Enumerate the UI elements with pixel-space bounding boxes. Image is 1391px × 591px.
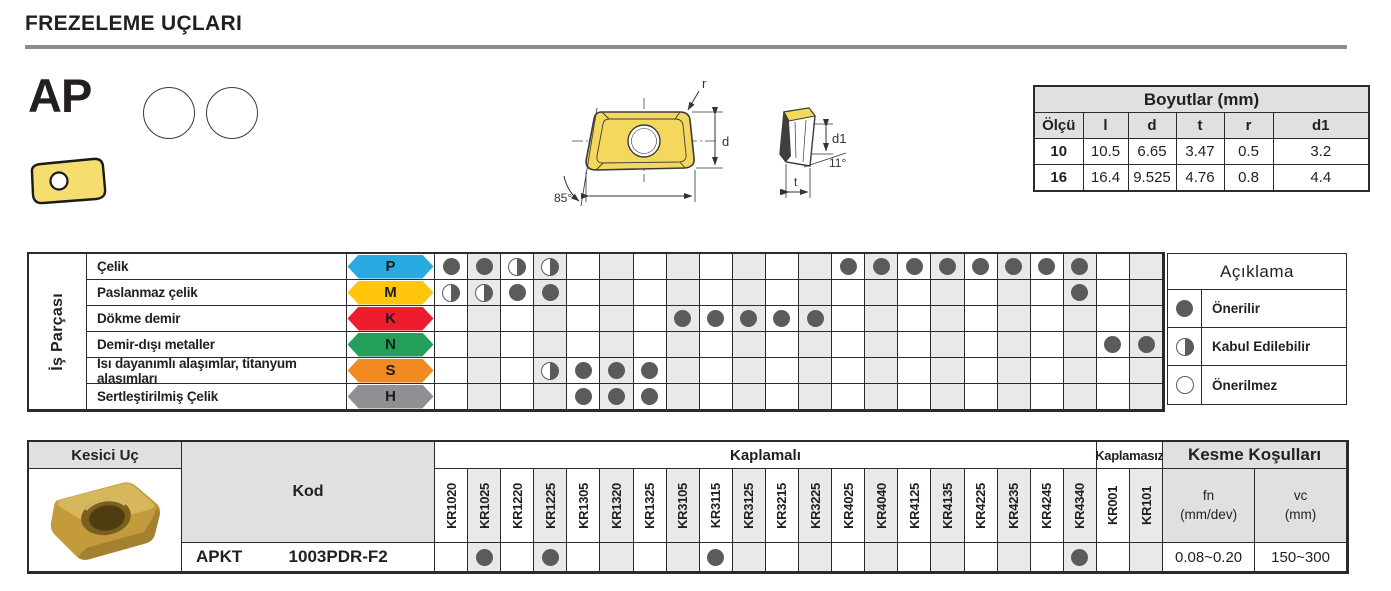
grade-mark-cell bbox=[998, 306, 1031, 332]
grade-header-text: KR1225 bbox=[543, 483, 558, 529]
grade-mark-cell bbox=[1064, 306, 1097, 332]
dimensions-value: 16 bbox=[1034, 165, 1083, 192]
grade-mark-cell bbox=[766, 306, 799, 332]
dimensions-value: 4.76 bbox=[1176, 165, 1224, 192]
grade-mark-cell bbox=[634, 280, 667, 306]
insert-code-prefix: APKT bbox=[196, 547, 242, 567]
recommendation-full-dot bbox=[608, 388, 625, 405]
grade-mark-cell bbox=[799, 306, 832, 332]
grade-header-text: KR1020 bbox=[444, 483, 459, 529]
kod-header: Kod bbox=[182, 442, 435, 543]
recommendation-full-dot bbox=[1138, 336, 1155, 353]
dimensions-col-header: d1 bbox=[1273, 113, 1369, 139]
grade-header-kr101: KR101 bbox=[1130, 469, 1163, 543]
grade-mark-cell bbox=[435, 280, 468, 306]
grade-mark-cell bbox=[634, 384, 667, 410]
legend-symbol-cell bbox=[1168, 366, 1202, 404]
workpiece-material-table: İş Parçası ÇelikPPaslanmaz çelikMDökme d… bbox=[27, 252, 1165, 412]
grade-header-kr3125: KR3125 bbox=[733, 469, 766, 543]
grade-mark-cell bbox=[501, 280, 534, 306]
grade-mark-cell bbox=[931, 358, 964, 384]
grade-mark-cell bbox=[1064, 332, 1097, 358]
not-recommended-circle-icon bbox=[1176, 376, 1194, 394]
material-row-label: Dökme demir bbox=[87, 306, 347, 332]
grade-mark-cell bbox=[600, 384, 633, 410]
grade-mark-cell bbox=[931, 254, 964, 280]
grade-mark-cell bbox=[468, 543, 501, 572]
grade-mark-cell bbox=[600, 254, 633, 280]
grade-mark-cell bbox=[667, 384, 700, 410]
grade-header-text: KR1305 bbox=[576, 483, 591, 529]
grade-header-text: KR1220 bbox=[510, 483, 525, 529]
insert-outline-icon bbox=[28, 157, 110, 205]
grade-mark-cell bbox=[700, 543, 733, 572]
grade-mark-cell bbox=[865, 306, 898, 332]
recommendation-full-dot bbox=[707, 310, 724, 327]
grade-mark-cell bbox=[931, 306, 964, 332]
grade-mark-cell bbox=[865, 332, 898, 358]
dimensions-value: 4.4 bbox=[1273, 165, 1369, 192]
grade-mark-cell bbox=[998, 254, 1031, 280]
grade-mark-cell bbox=[567, 384, 600, 410]
grade-mark-cell bbox=[501, 543, 534, 572]
grade-header-text: KR4235 bbox=[1006, 483, 1021, 529]
label-hole-diameter: d1 bbox=[832, 131, 846, 146]
legend-item-label: Kabul Edilebilir bbox=[1202, 328, 1346, 366]
fn-label-line1: fn bbox=[1203, 487, 1214, 505]
grade-mark-cell bbox=[700, 254, 733, 280]
grade-header-kr4235: KR4235 bbox=[998, 469, 1031, 543]
grade-header-kr4340: KR4340 bbox=[1064, 469, 1097, 543]
grade-header-kr4125: KR4125 bbox=[898, 469, 931, 543]
grade-mark-cell bbox=[1031, 358, 1064, 384]
grade-mark-cell bbox=[667, 332, 700, 358]
grade-mark-cell bbox=[865, 280, 898, 306]
grade-mark-cell bbox=[1130, 358, 1163, 384]
grade-mark-cell bbox=[965, 543, 998, 572]
recommendation-half-dot bbox=[541, 362, 559, 380]
grade-mark-cell bbox=[965, 358, 998, 384]
grade-mark-cell bbox=[799, 280, 832, 306]
label-radius: r bbox=[702, 76, 707, 91]
grade-mark-cell bbox=[567, 254, 600, 280]
grade-mark-cell bbox=[832, 280, 865, 306]
label-thickness: t bbox=[794, 175, 798, 189]
grade-header-text: KR4125 bbox=[907, 483, 922, 529]
grade-mark-cell bbox=[435, 384, 468, 410]
recommendation-full-dot bbox=[1038, 258, 1055, 275]
grade-mark-cell bbox=[435, 254, 468, 280]
recommendation-full-dot bbox=[740, 310, 757, 327]
grade-mark-cell bbox=[1097, 254, 1130, 280]
recommendation-full-dot bbox=[542, 549, 559, 566]
grade-header-kr3115: KR3115 bbox=[700, 469, 733, 543]
grade-mark-cell bbox=[766, 543, 799, 572]
dimensions-value: 9.525 bbox=[1128, 165, 1176, 192]
grade-mark-cell bbox=[468, 358, 501, 384]
grade-mark-cell bbox=[634, 543, 667, 572]
legend-title: Açıklama bbox=[1168, 254, 1346, 290]
grade-mark-cell bbox=[567, 358, 600, 384]
grade-header-kr1025: KR1025 bbox=[468, 469, 501, 543]
recommendation-full-dot bbox=[773, 310, 790, 327]
grade-mark-cell bbox=[534, 332, 567, 358]
grade-header-text: KR1325 bbox=[642, 483, 657, 529]
grade-mark-cell bbox=[468, 254, 501, 280]
insert-hole bbox=[51, 173, 68, 190]
grade-mark-cell bbox=[1031, 543, 1064, 572]
grade-mark-cell bbox=[733, 280, 766, 306]
grade-header-text: KR1025 bbox=[477, 483, 492, 529]
fn-header: fn (mm/dev) bbox=[1163, 469, 1255, 543]
grade-mark-cell bbox=[898, 306, 931, 332]
recommendation-full-dot bbox=[1071, 549, 1088, 566]
material-row-label: Demir-dışı metaller bbox=[87, 332, 347, 358]
grade-mark-cell bbox=[1064, 358, 1097, 384]
kesici-uc-header: Kesici Uç bbox=[29, 442, 182, 469]
grade-mark-cell bbox=[534, 358, 567, 384]
grade-mark-cell bbox=[1130, 254, 1163, 280]
grade-mark-cell bbox=[1097, 306, 1130, 332]
coated-header: Kaplamalı bbox=[435, 442, 1097, 469]
grade-mark-cell bbox=[468, 332, 501, 358]
dimensions-title: Boyutlar (mm) bbox=[1034, 86, 1369, 113]
grade-header-kr3225: KR3225 bbox=[799, 469, 832, 543]
grade-mark-cell bbox=[733, 384, 766, 410]
iso-hexagon-m: M bbox=[348, 281, 434, 305]
dimensions-title-row: Boyutlar (mm) bbox=[1034, 86, 1369, 113]
grade-mark-cell bbox=[468, 384, 501, 410]
grade-mark-cell bbox=[898, 543, 931, 572]
grade-mark-cell bbox=[501, 254, 534, 280]
fn-value: 0.08~0.20 bbox=[1163, 543, 1255, 572]
recommendation-half-dot bbox=[475, 284, 493, 302]
recommendation-full-dot bbox=[707, 549, 724, 566]
grade-mark-cell bbox=[799, 384, 832, 410]
recommendation-full-dot bbox=[575, 388, 592, 405]
grade-mark-cell bbox=[865, 543, 898, 572]
grade-mark-cell bbox=[1064, 280, 1097, 306]
insert-hole bbox=[628, 125, 660, 157]
recommendation-full-dot bbox=[1071, 258, 1088, 275]
grade-mark-cell bbox=[931, 384, 964, 410]
grade-mark-cell bbox=[1097, 332, 1130, 358]
iso-hexagon-p: P bbox=[348, 255, 434, 279]
grade-mark-cell bbox=[832, 358, 865, 384]
grade-header-kr1305: KR1305 bbox=[567, 469, 600, 543]
recommendation-full-dot bbox=[873, 258, 890, 275]
recommendation-full-dot bbox=[443, 258, 460, 275]
grade-mark-cell bbox=[501, 358, 534, 384]
grade-mark-cell bbox=[501, 332, 534, 358]
dimensions-value: 0.8 bbox=[1224, 165, 1273, 192]
dimensions-value: 3.47 bbox=[1176, 139, 1224, 165]
material-row-label: Çelik bbox=[87, 254, 347, 280]
grade-header-text: KR3125 bbox=[741, 483, 756, 529]
grade-mark-cell bbox=[534, 280, 567, 306]
grade-mark-cell bbox=[1130, 332, 1163, 358]
grade-mark-cell bbox=[799, 543, 832, 572]
grade-header-kr4040: KR4040 bbox=[865, 469, 898, 543]
grade-mark-cell bbox=[733, 332, 766, 358]
cutting-conditions-header: Kesme Koşulları bbox=[1163, 442, 1347, 469]
iso-code-cell: K bbox=[347, 306, 435, 332]
grade-mark-cell bbox=[733, 358, 766, 384]
grade-mark-cell bbox=[733, 306, 766, 332]
grade-mark-cell bbox=[998, 384, 1031, 410]
grade-mark-cell bbox=[865, 384, 898, 410]
legend: Açıklama Önerilir Kabul Edilebilir Öneri… bbox=[1167, 253, 1347, 405]
grade-header-kr4245: KR4245 bbox=[1031, 469, 1064, 543]
dimensions-data-row: 1616.49.5254.760.84.4 bbox=[1034, 165, 1369, 192]
grade-mark-cell bbox=[865, 358, 898, 384]
grade-mark-cell bbox=[700, 280, 733, 306]
grade-mark-cell bbox=[766, 358, 799, 384]
legend-item-label: Önerilir bbox=[1202, 290, 1346, 328]
catalog-page: { "page": { "title": "FREZELEME UÇLARI" … bbox=[0, 0, 1391, 591]
grade-mark-cell bbox=[865, 254, 898, 280]
grade-header-kr3215: KR3215 bbox=[766, 469, 799, 543]
grade-mark-cell bbox=[799, 332, 832, 358]
grade-mark-cell bbox=[998, 543, 1031, 572]
legend-symbol-cell bbox=[1168, 328, 1202, 366]
grade-mark-cell bbox=[898, 254, 931, 280]
grade-mark-cell bbox=[1130, 280, 1163, 306]
grade-mark-cell bbox=[799, 254, 832, 280]
grade-mark-cell bbox=[435, 358, 468, 384]
grade-mark-cell bbox=[600, 543, 633, 572]
grade-mark-cell bbox=[766, 280, 799, 306]
label-diameter: d bbox=[722, 134, 729, 149]
grade-mark-cell bbox=[600, 280, 633, 306]
grade-mark-cell bbox=[634, 306, 667, 332]
acceptable-halfdot-icon bbox=[1176, 338, 1194, 356]
iso-hexagon-s: S bbox=[348, 359, 434, 383]
fn-label-line2: (mm/dev) bbox=[1180, 506, 1237, 524]
grade-mark-cell bbox=[832, 384, 865, 410]
grade-mark-cell bbox=[667, 306, 700, 332]
dimensions-value: 16.4 bbox=[1083, 165, 1128, 192]
dimensions-table: Boyutlar (mm)Ölçüldtrd11010.56.653.470.5… bbox=[1033, 85, 1370, 192]
grade-mark-cell bbox=[468, 306, 501, 332]
grade-header-text: KR4135 bbox=[940, 483, 955, 529]
grade-mark-cell bbox=[832, 332, 865, 358]
recommendation-full-dot bbox=[840, 258, 857, 275]
grade-mark-cell bbox=[435, 543, 468, 572]
grade-mark-cell bbox=[965, 384, 998, 410]
grade-mark-cell bbox=[501, 384, 534, 410]
grade-mark-cell bbox=[1031, 280, 1064, 306]
recommendation-full-dot bbox=[1005, 258, 1022, 275]
grade-mark-cell bbox=[1097, 280, 1130, 306]
grade-mark-cell bbox=[766, 332, 799, 358]
grade-header-text: KR3225 bbox=[808, 483, 823, 529]
vc-label-line2: (mm) bbox=[1285, 506, 1316, 524]
iso-code-cell: P bbox=[347, 254, 435, 280]
dimensions-value: 6.65 bbox=[1128, 139, 1176, 165]
grade-mark-cell bbox=[1064, 384, 1097, 410]
grade-header-text: KR4025 bbox=[841, 483, 856, 529]
grade-mark-cell bbox=[931, 280, 964, 306]
recommendation-full-dot bbox=[542, 284, 559, 301]
insert-code-suffix: 1003PDR-F2 bbox=[289, 547, 388, 567]
grade-header-text: KR4245 bbox=[1039, 483, 1054, 529]
grade-mark-cell bbox=[534, 384, 567, 410]
grade-mark-cell bbox=[965, 254, 998, 280]
grade-mark-cell bbox=[634, 332, 667, 358]
grade-mark-cell bbox=[600, 332, 633, 358]
grade-mark-cell bbox=[1130, 384, 1163, 410]
grade-mark-cell bbox=[1031, 332, 1064, 358]
grade-mark-cell bbox=[1064, 254, 1097, 280]
dimensions-data-row: 1010.56.653.470.53.2 bbox=[1034, 139, 1369, 165]
workpiece-axis-cell: İş Parçası bbox=[29, 254, 87, 410]
grade-header-text: KR101 bbox=[1139, 486, 1154, 525]
grade-mark-cell bbox=[1097, 543, 1130, 572]
grade-header-kr1220: KR1220 bbox=[501, 469, 534, 543]
grade-header-kr4135: KR4135 bbox=[931, 469, 964, 543]
vc-value: 150~300 bbox=[1255, 543, 1347, 572]
dimensions-value: 10 bbox=[1034, 139, 1083, 165]
grade-mark-cell bbox=[1097, 384, 1130, 410]
recommendation-half-dot bbox=[541, 258, 559, 276]
grade-header-text: KR3105 bbox=[675, 483, 690, 529]
iso-hexagon-k: K bbox=[348, 307, 434, 331]
dimensions-value: 0.5 bbox=[1224, 139, 1273, 165]
grade-mark-cell bbox=[832, 543, 865, 572]
material-row-label: Sertleştirilmiş Çelik bbox=[87, 384, 347, 410]
grade-header-kr1320: KR1320 bbox=[600, 469, 633, 543]
recommended-dot-icon bbox=[1176, 300, 1193, 317]
grade-mark-cell bbox=[667, 254, 700, 280]
recommendation-full-dot bbox=[476, 549, 493, 566]
grade-mark-cell bbox=[733, 254, 766, 280]
recommendation-full-dot bbox=[476, 258, 493, 275]
vc-label-line1: vc bbox=[1294, 487, 1308, 505]
recommendation-full-dot bbox=[608, 362, 625, 379]
recommendation-full-dot bbox=[807, 310, 824, 327]
page-title: FREZELEME UÇLARI bbox=[25, 12, 242, 36]
material-row-label: Isı dayanımlı alaşımlar, titanyum alaşım… bbox=[87, 358, 347, 384]
grade-header-kr1020: KR1020 bbox=[435, 469, 468, 543]
material-row-label: Paslanmaz çelik bbox=[87, 280, 347, 306]
grade-mark-cell bbox=[567, 332, 600, 358]
grade-mark-cell bbox=[998, 332, 1031, 358]
recommendation-full-dot bbox=[674, 310, 691, 327]
dimensions-col-header: t bbox=[1176, 113, 1224, 139]
grade-mark-cell bbox=[567, 280, 600, 306]
dimensions-col-header: d bbox=[1128, 113, 1176, 139]
technical-drawing: r d 85° d1 11° t bbox=[552, 66, 852, 216]
grade-mark-cell bbox=[1031, 306, 1064, 332]
grade-mark-cell bbox=[600, 358, 633, 384]
grade-header-text: KR1320 bbox=[609, 483, 624, 529]
grade-header-kr001: KR001 bbox=[1097, 469, 1130, 543]
series-label: AP bbox=[28, 72, 91, 119]
uncoated-header: Kaplamasız bbox=[1097, 442, 1163, 469]
dimensions-value: 3.2 bbox=[1273, 139, 1369, 165]
grade-mark-cell bbox=[1031, 384, 1064, 410]
grade-mark-cell bbox=[700, 358, 733, 384]
grade-mark-cell bbox=[898, 280, 931, 306]
grade-mark-cell bbox=[501, 306, 534, 332]
iso-code-cell: M bbox=[347, 280, 435, 306]
grade-mark-cell bbox=[965, 332, 998, 358]
vc-header: vc (mm) bbox=[1255, 469, 1347, 543]
grade-header-kr1225: KR1225 bbox=[534, 469, 567, 543]
grade-mark-cell bbox=[931, 543, 964, 572]
grade-mark-cell bbox=[600, 306, 633, 332]
grade-mark-cell bbox=[931, 332, 964, 358]
grade-mark-cell bbox=[468, 280, 501, 306]
recommendation-full-dot bbox=[906, 258, 923, 275]
grade-mark-cell bbox=[435, 332, 468, 358]
iso-code-cell: S bbox=[347, 358, 435, 384]
recommendation-full-dot bbox=[641, 388, 658, 405]
legend-item-label: Önerilmez bbox=[1202, 366, 1346, 404]
dimensions-value: 10.5 bbox=[1083, 139, 1128, 165]
grade-mark-cell bbox=[567, 543, 600, 572]
grade-mark-cell bbox=[700, 306, 733, 332]
grade-header-text: KR3115 bbox=[708, 483, 723, 528]
recommendation-full-dot bbox=[1104, 336, 1121, 353]
title-rule bbox=[25, 45, 1347, 49]
grade-mark-cell bbox=[534, 254, 567, 280]
recommendation-full-dot bbox=[1071, 284, 1088, 301]
grade-mark-cell bbox=[1031, 254, 1064, 280]
grade-mark-cell bbox=[965, 306, 998, 332]
dimensions-header-row: Ölçüldtrd1 bbox=[1034, 113, 1369, 139]
grade-mark-cell bbox=[733, 543, 766, 572]
iso-hexagon-h: H bbox=[348, 385, 434, 409]
grade-mark-cell bbox=[534, 543, 567, 572]
grade-header-kr4225: KR4225 bbox=[965, 469, 998, 543]
insert-code-cell: APKT 1003PDR-F2 bbox=[182, 543, 435, 572]
grade-mark-cell bbox=[667, 543, 700, 572]
iso-code-cell: H bbox=[347, 384, 435, 410]
grade-mark-cell bbox=[799, 358, 832, 384]
grade-mark-cell bbox=[1097, 358, 1130, 384]
iso-code-cell: N bbox=[347, 332, 435, 358]
insert-photo-cell bbox=[29, 469, 182, 572]
workpiece-axis-label: İş Parçası bbox=[49, 293, 67, 371]
legend-symbol-cell bbox=[1168, 290, 1202, 328]
grade-mark-cell bbox=[898, 332, 931, 358]
recommendation-full-dot bbox=[575, 362, 592, 379]
recommendation-half-dot bbox=[508, 258, 526, 276]
grade-mark-cell bbox=[766, 254, 799, 280]
grade-mark-cell bbox=[534, 306, 567, 332]
recommendation-full-dot bbox=[509, 284, 526, 301]
grade-mark-cell bbox=[667, 280, 700, 306]
grade-mark-cell bbox=[700, 384, 733, 410]
grade-mark-cell bbox=[998, 280, 1031, 306]
recommendation-full-dot bbox=[641, 362, 658, 379]
recommendation-full-dot bbox=[972, 258, 989, 275]
insert-photo bbox=[30, 470, 180, 570]
insert-shape-circle bbox=[206, 87, 258, 139]
grade-mark-cell bbox=[898, 384, 931, 410]
grade-header-text: KR001 bbox=[1105, 486, 1120, 525]
grade-mark-cell bbox=[898, 358, 931, 384]
grade-mark-cell bbox=[832, 306, 865, 332]
dimensions-col-header: Ölçü bbox=[1034, 113, 1083, 139]
grade-mark-cell bbox=[1130, 543, 1163, 572]
grade-header-kr4025: KR4025 bbox=[832, 469, 865, 543]
iso-hexagon-n: N bbox=[348, 333, 434, 357]
recommendation-half-dot bbox=[442, 284, 460, 302]
grade-mark-cell bbox=[435, 306, 468, 332]
